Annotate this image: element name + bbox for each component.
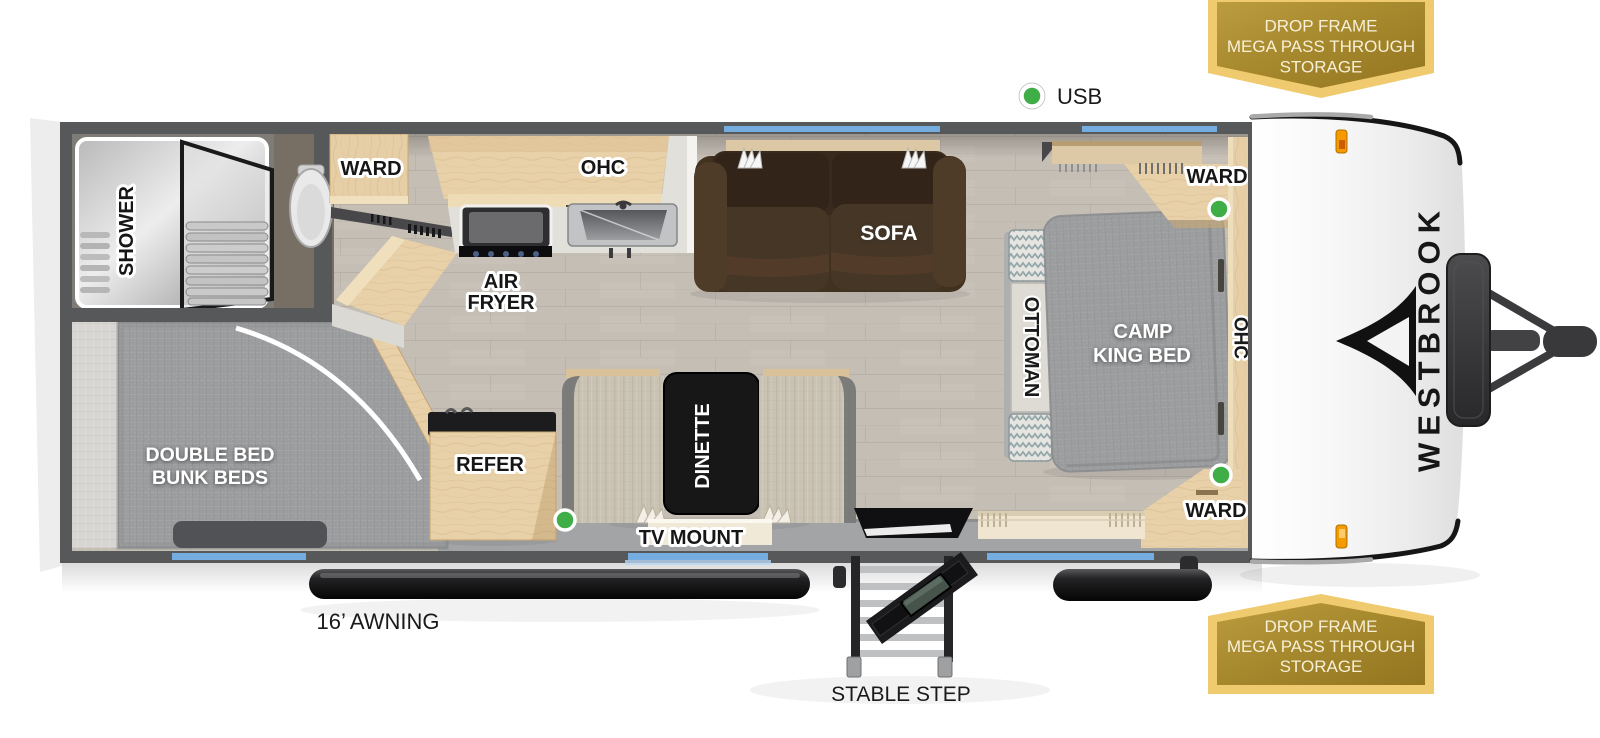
svg-text:REFER: REFER <box>456 454 524 476</box>
svg-text:OHC: OHC <box>1230 317 1251 360</box>
svg-text:OHC: OHC <box>581 157 625 179</box>
svg-text:DOUBLE BED: DOUBLE BED <box>146 444 275 466</box>
svg-text:DROP FRAME: DROP FRAME <box>1264 17 1377 36</box>
svg-text:WARD: WARD <box>1186 166 1247 188</box>
svg-text:CAMP: CAMP <box>1114 321 1173 343</box>
svg-text:DINETTE: DINETTE <box>692 403 714 489</box>
svg-text:WESTBROOK: WESTBROOK <box>1412 204 1447 472</box>
svg-text:DROP FRAME: DROP FRAME <box>1264 617 1377 636</box>
svg-text:FRYER: FRYER <box>467 292 535 314</box>
svg-text:TV MOUNT: TV MOUNT <box>639 527 743 549</box>
svg-text:STORAGE: STORAGE <box>1280 58 1363 77</box>
svg-text:KING BED: KING BED <box>1093 345 1191 367</box>
svg-text:MEGA PASS THROUGH: MEGA PASS THROUGH <box>1227 637 1415 656</box>
svg-text:AIR: AIR <box>484 271 519 293</box>
svg-text:SHOWER: SHOWER <box>116 185 138 276</box>
svg-text:MEGA PASS THROUGH: MEGA PASS THROUGH <box>1227 37 1415 56</box>
svg-text:WARD: WARD <box>1185 500 1246 522</box>
svg-text:OTTOMAN: OTTOMAN <box>1020 297 1042 398</box>
svg-text:STABLE STEP: STABLE STEP <box>831 683 971 706</box>
svg-text:WARD: WARD <box>340 158 401 180</box>
svg-text:BUNK BEDS: BUNK BEDS <box>152 467 268 489</box>
svg-text:STORAGE: STORAGE <box>1280 657 1363 676</box>
svg-text:16’ AWNING: 16’ AWNING <box>316 609 439 634</box>
svg-text:SOFA: SOFA <box>860 222 917 245</box>
svg-text:USB: USB <box>1057 84 1102 109</box>
